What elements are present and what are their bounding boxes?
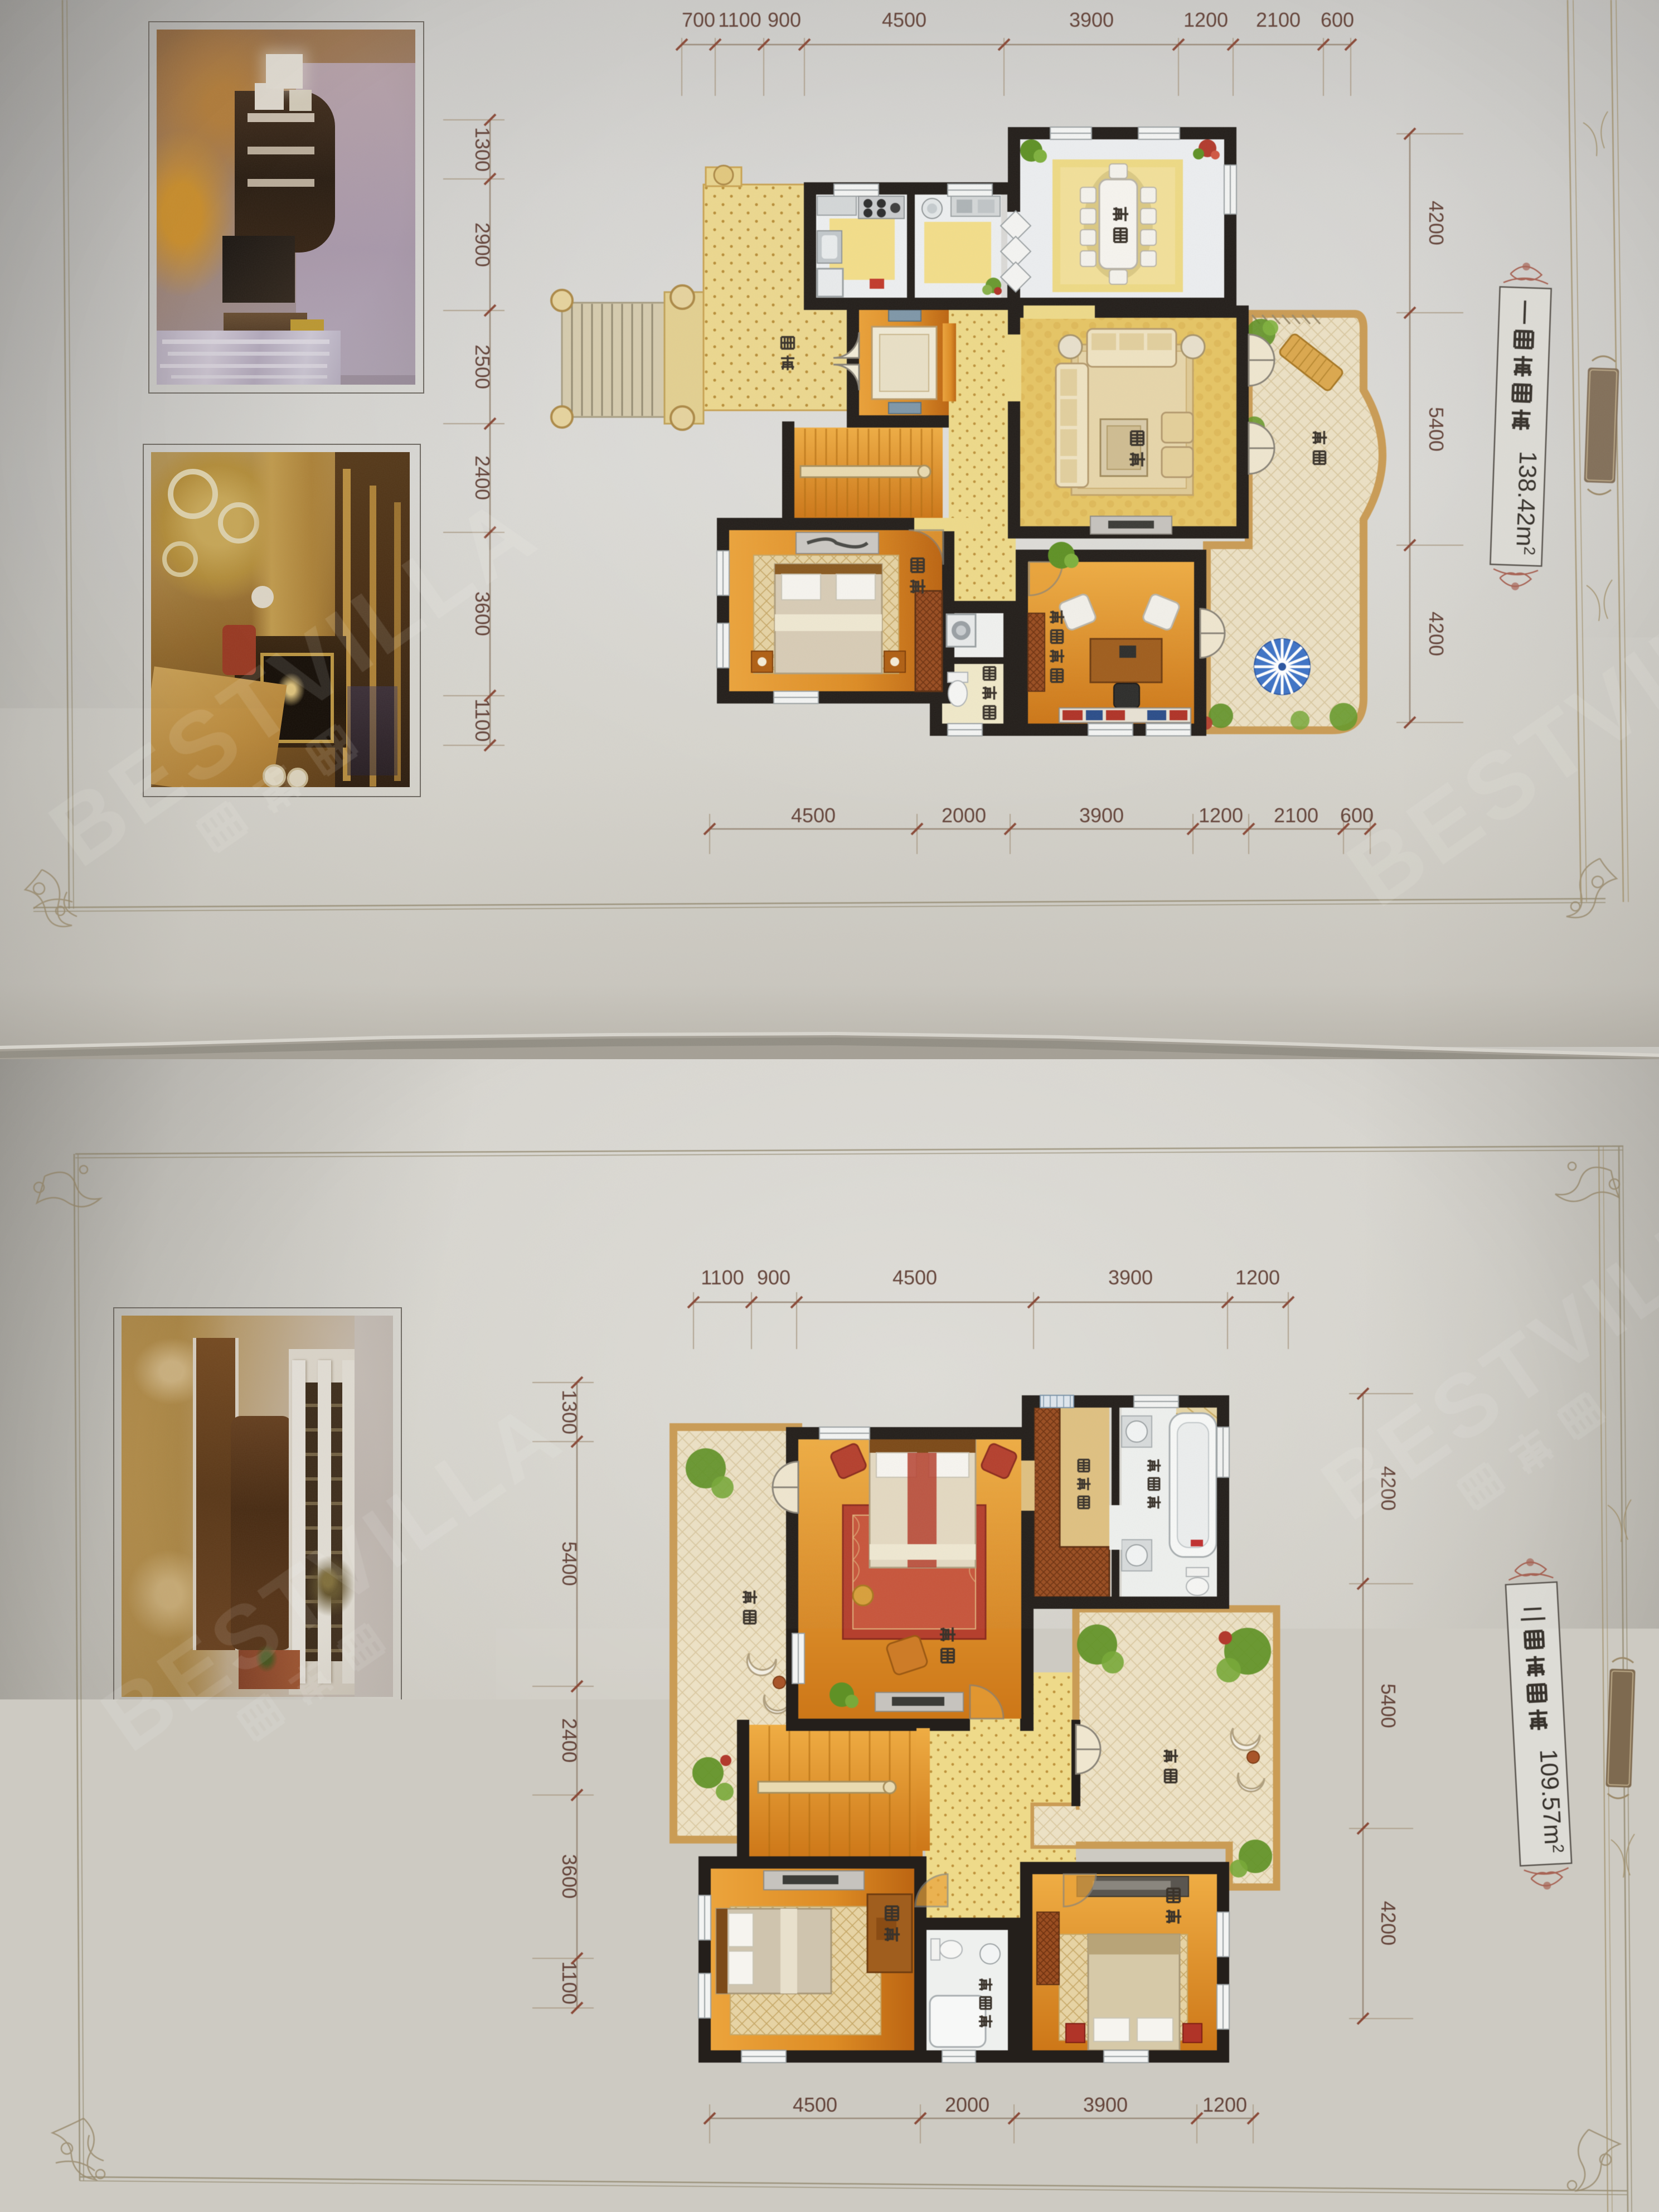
svg-text:1200: 1200 — [1202, 2093, 1247, 2116]
svg-text:4500: 4500 — [892, 1266, 937, 1289]
svg-text:1200: 1200 — [1235, 1266, 1280, 1289]
svg-text:109.57m2: 109.57m2 — [1534, 1748, 1567, 1854]
svg-text:1300: 1300 — [558, 1390, 581, 1434]
svg-text:3600: 3600 — [558, 1854, 581, 1899]
svg-text:4500: 4500 — [793, 2093, 837, 2116]
svg-text:1100: 1100 — [701, 1266, 744, 1289]
svg-text:900: 900 — [757, 1266, 790, 1289]
svg-text:3900: 3900 — [1083, 2093, 1128, 2116]
svg-text:2400: 2400 — [558, 1718, 581, 1763]
svg-text:5400: 5400 — [558, 1541, 581, 1586]
svg-text:5400: 5400 — [1377, 1684, 1400, 1728]
svg-text:3900: 3900 — [1108, 1266, 1153, 1289]
svg-text:1100: 1100 — [558, 1961, 581, 2004]
svg-text:2000: 2000 — [945, 2093, 989, 2116]
svg-text:4200: 4200 — [1377, 1901, 1400, 1946]
svg-text:BESTVILLA: BESTVILLA — [84, 1381, 580, 1770]
